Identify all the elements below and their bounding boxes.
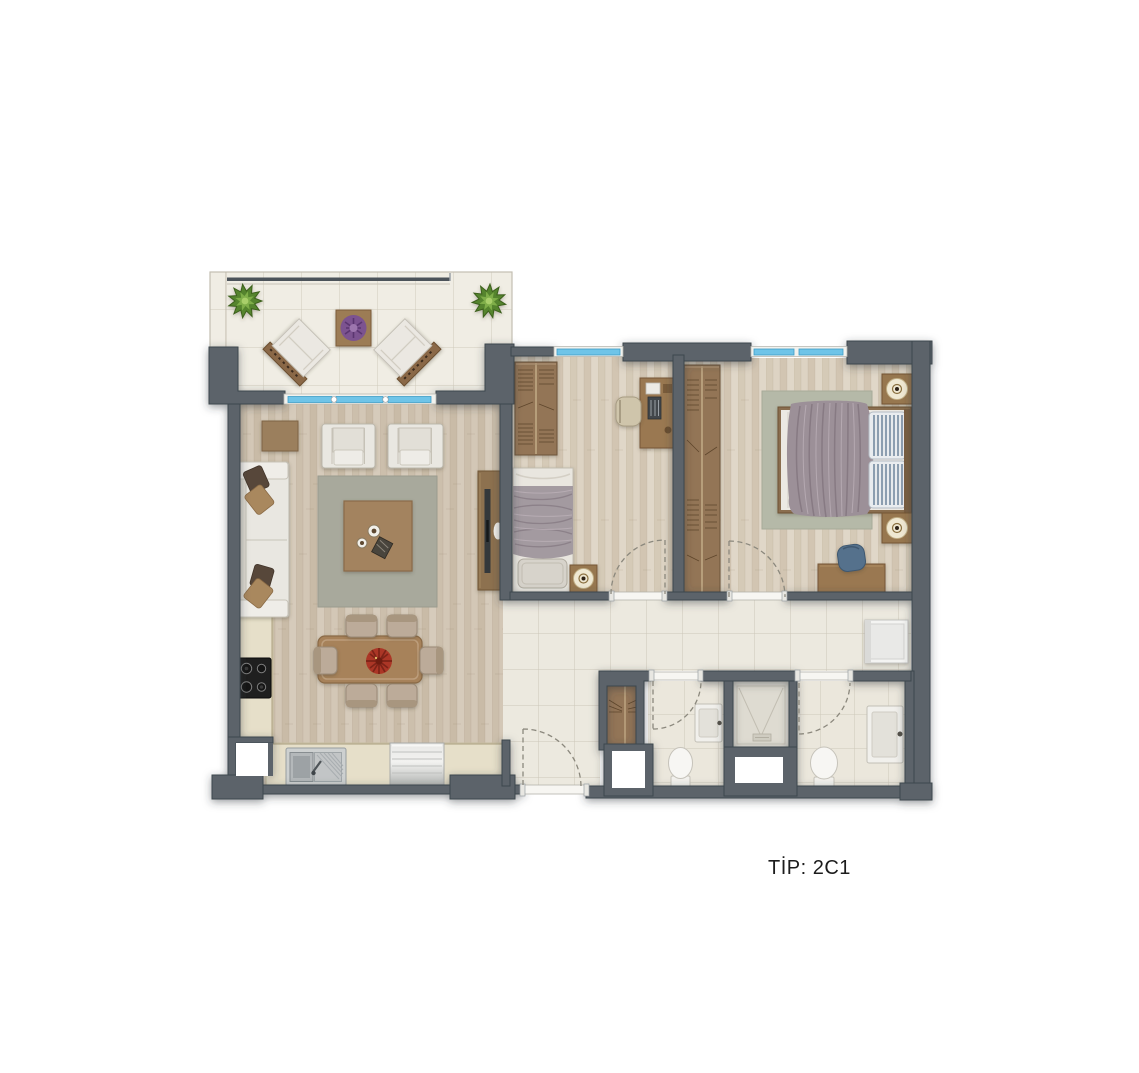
- svg-text:TİP: 2C1: TİP: 2C1: [768, 856, 851, 879]
